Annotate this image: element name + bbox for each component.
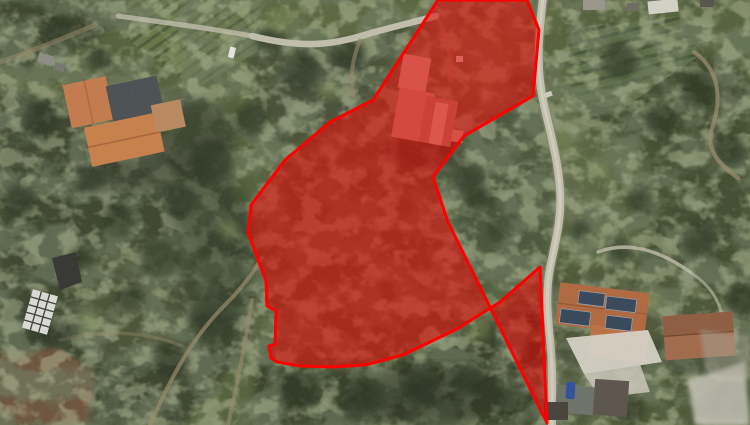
- satellite-image: [0, 0, 750, 425]
- aerial-parcel-photo[interactable]: [0, 0, 750, 425]
